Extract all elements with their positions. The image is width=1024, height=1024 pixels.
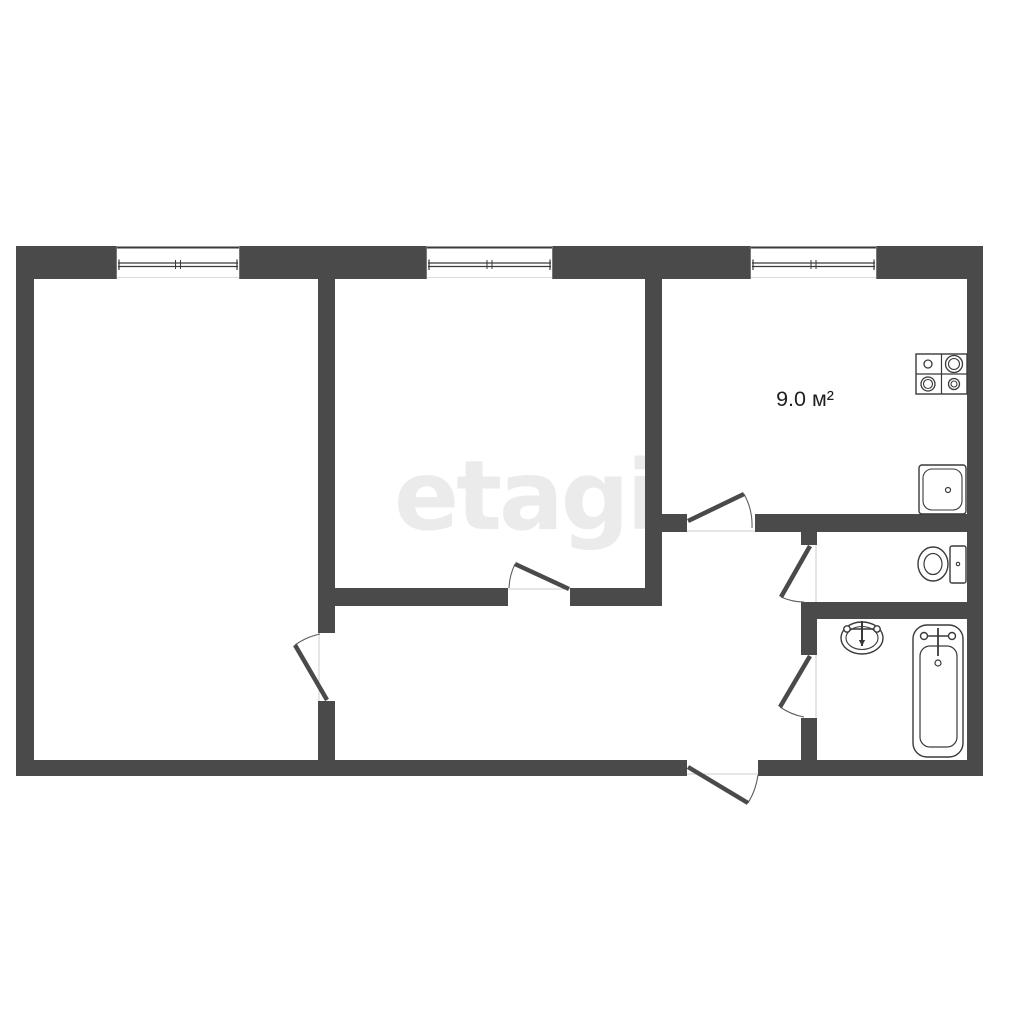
labels-layer: 9.0 м² <box>776 387 834 411</box>
wall-wc-bathroom <box>801 602 967 619</box>
door-entrance-leaf <box>688 767 748 803</box>
kitchen-sink-icon-body <box>919 465 966 514</box>
wash-basin-icon-faucet-handle-right <box>874 626 880 632</box>
floor-plan-svg: 9.0 м² <box>0 0 1024 1024</box>
wall-kitchen-bottom-seg2 <box>755 514 967 532</box>
window-left-room <box>116 246 240 279</box>
walls-layer <box>16 246 983 776</box>
door-wc-leaf <box>781 546 810 597</box>
door-entrance <box>688 767 758 803</box>
wall-left-room-right-seg1 <box>318 279 335 633</box>
wall-middle-room-bottom-seg1 <box>335 588 508 606</box>
wall-middle-room-bottom-seg2 <box>570 588 645 606</box>
door-kitchen-swing-arc <box>744 494 752 528</box>
outer-bottom-wall-seg2 <box>758 760 983 776</box>
door-entrance-swing-arc <box>748 775 758 803</box>
bathtub-icon <box>913 625 963 757</box>
toilet-icon-bowl <box>918 547 948 581</box>
stove-icon <box>916 354 967 394</box>
door-bathroom-leaf <box>780 656 810 707</box>
door-wc-swing-arc <box>781 597 804 602</box>
door-left-room-swing-arc <box>295 634 320 645</box>
kitchen-sink-icon <box>919 465 966 514</box>
door-bathroom <box>780 656 810 717</box>
outer-top-wall-seg2 <box>240 246 426 279</box>
door-middle-room-swing-arc <box>509 564 515 588</box>
floor-plan-image: etagi 9.0 м² <box>0 0 1024 1024</box>
outer-top-wall-seg3 <box>553 246 750 279</box>
outer-bottom-wall-seg1 <box>16 760 687 776</box>
windows-layer <box>116 246 877 279</box>
wash-basin-icon-faucet-handle-left <box>844 626 850 632</box>
door-left-room <box>295 634 327 700</box>
outer-left-wall <box>16 246 34 776</box>
kitchen-area-label: 9.0 м² <box>776 387 834 411</box>
door-wc <box>781 546 810 602</box>
wall-middle-room-kitchen <box>645 279 662 606</box>
outer-right-wall <box>967 246 983 776</box>
fixtures-layer <box>841 354 967 757</box>
bathtub-icon-faucet-handle-left <box>921 633 928 640</box>
door-kitchen-leaf <box>688 494 744 521</box>
bathtub-icon-faucet-handle-right <box>949 633 956 640</box>
wall-kitchen-bottom-seg1 <box>662 514 687 532</box>
window-kitchen <box>750 246 877 279</box>
doors-layer <box>295 494 810 803</box>
door-kitchen <box>688 494 752 528</box>
door-middle-room-leaf <box>515 564 569 589</box>
wall-left-room-right-seg2 <box>318 701 335 760</box>
door-bathroom-swing-arc <box>780 707 804 717</box>
toilet-icon-tank <box>950 546 966 583</box>
door-left-room-leaf <box>295 645 327 700</box>
window-middle-room <box>426 246 553 279</box>
wall-sanitary-left-seg1 <box>801 532 817 545</box>
wash-basin-icon <box>841 621 883 654</box>
toilet-icon <box>918 546 966 583</box>
thresholds-layer <box>319 531 816 774</box>
door-middle-room <box>509 564 569 589</box>
wall-sanitary-left-seg3 <box>801 718 817 760</box>
